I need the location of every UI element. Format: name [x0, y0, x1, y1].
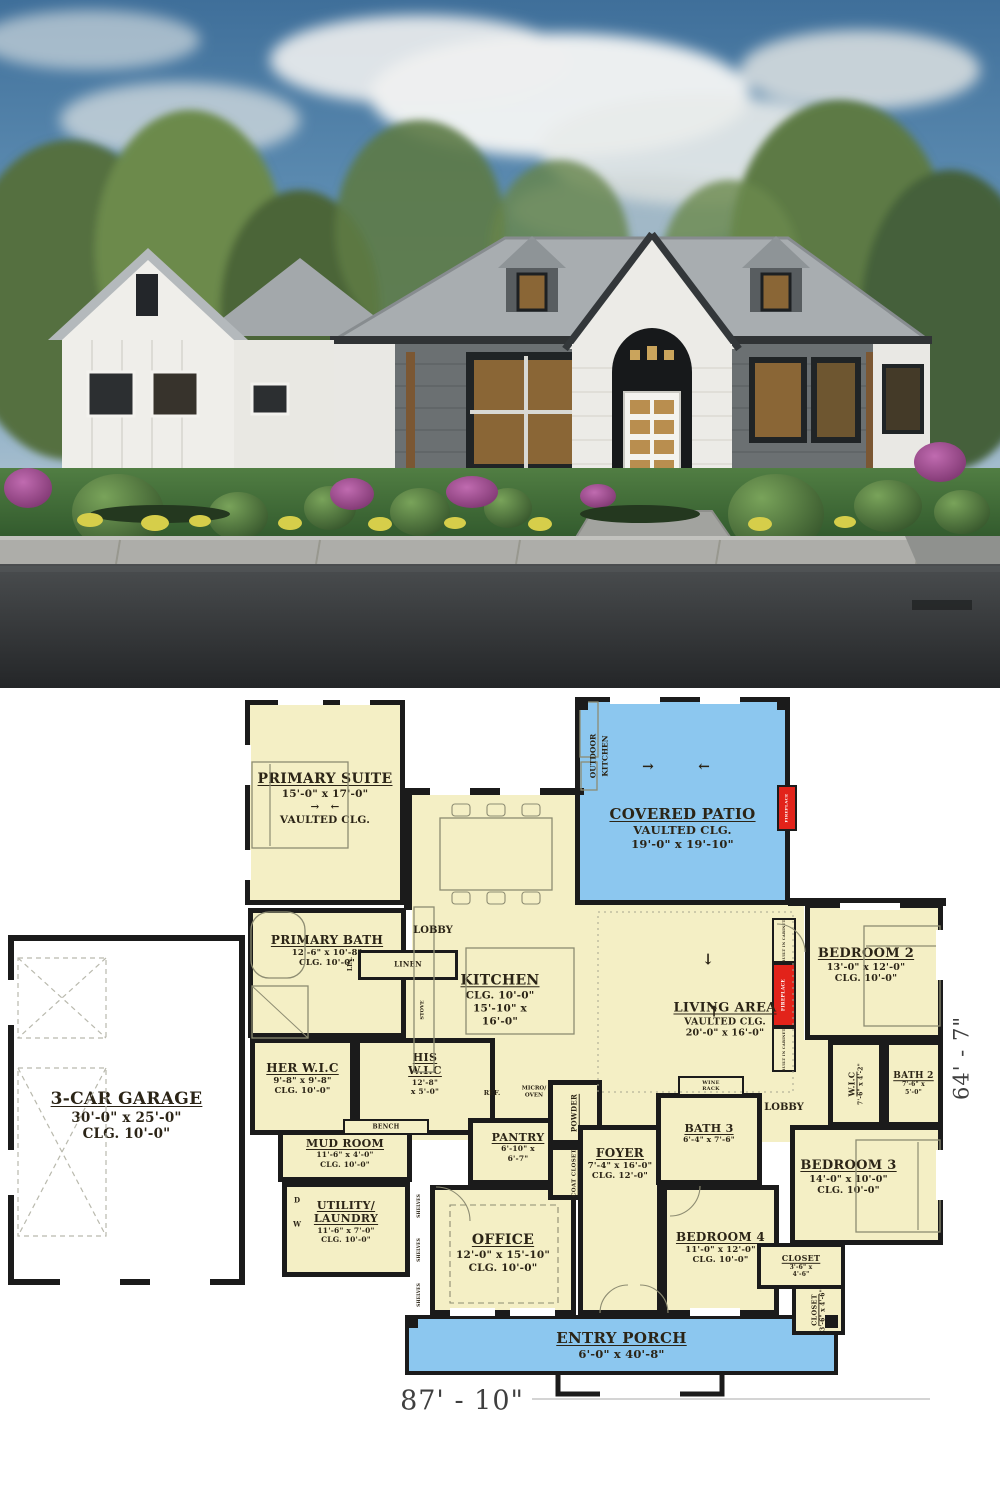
room-label-her-wic: HER W.I.C9'-8" x 9'-8"CLG. 10'-0" [266, 1061, 338, 1096]
room-label-wine-rack: WINERACK [702, 1080, 720, 1092]
room-entry-porch: ENTRY PORCH6'-0" x 40'-8" [405, 1315, 838, 1375]
plan-annotation: OVEN [525, 1093, 543, 1099]
plan-annotation: W [293, 1221, 301, 1228]
room-label-his-wic: HISW.I.C12'-8"x 5'-0" [408, 1051, 442, 1096]
plan-annotation: SHELVES [418, 1283, 423, 1307]
room-label-linen: LINEN [394, 961, 422, 970]
wall-segment [404, 788, 412, 910]
room-utility-laundry: UTILITY/LAUNDRY11'-6" x 7'-0"CLG. 10'-0" [282, 1182, 410, 1277]
room-garage: 3-CAR GARAGE30'-0" x 25'-0"CLG. 10'-0" [8, 935, 245, 1285]
room-label-bedroom-2: BEDROOM 213'-0" x 12'-0"CLG. 10'-0" [818, 946, 914, 985]
room-primary-suite: PRIMARY SUITE15'-0" x 17'-0"→ ←VAULTED C… [245, 700, 405, 905]
floor-plan: COVERED PATIOVAULTED CLG.19'-0" x 19'-10… [0, 688, 1000, 1500]
room-label-fireplace-patio: FIREPLACE [785, 794, 790, 823]
room-label-pantry: PANTRY6'-10" x6'-7" [492, 1131, 545, 1163]
room-label-living-area: LIVING AREAVAULTED CLG.20'-0" x 16'-0" [673, 1000, 776, 1039]
room-label-bench: BENCH [372, 1123, 399, 1130]
exterior-photo [0, 0, 1000, 688]
plan-annotation: MICRO/ [522, 1086, 546, 1092]
room-label-bath-2: BATH 27'-6" x5'-0" [893, 1071, 934, 1097]
room-label-foyer: FOYER7'-4" x 16'-0"CLG. 12'-0" [588, 1146, 652, 1181]
plan-annotation: D [294, 1197, 300, 1204]
room-her-wic: HER W.I.C9'-8" x 9'-8"CLG. 10'-0" [250, 1038, 355, 1135]
plan-annotation: OUTDOOR [589, 734, 597, 778]
room-closet-bedroom4: CLOSET3'-6" x4'-6" [757, 1243, 845, 1289]
plan-annotation: REF. [484, 1090, 501, 1097]
plan-annotation: SHELVES [418, 1194, 423, 1218]
room-label-primary-suite: PRIMARY SUITE15'-0" x 17'-0"→ ←VAULTED C… [258, 771, 393, 826]
room-label-utility-laundry: UTILITY/LAUNDRY11'-6" x 7'-0"CLG. 10'-0" [314, 1199, 378, 1244]
plan-annotation: ← [698, 760, 710, 774]
room-bedroom-3: BEDROOM 314'-0" x 10'-0"CLG. 10'-0" [790, 1125, 943, 1245]
room-closet-bedroom3: CLOSET3'-6" x 4'-6" [792, 1285, 845, 1335]
room-label-closet-bedroom4: CLOSET3'-6" x4'-6" [782, 1254, 821, 1278]
room-label-closet-bedroom3: CLOSET3'-6" x 4'-6" [811, 1289, 826, 1331]
street [0, 536, 1000, 688]
house-plan-pin: COVERED PATIOVAULTED CLG.19'-0" x 19'-10… [0, 0, 1000, 1500]
room-label-wic-2: W.I.C7'-6" x 4'-2" [847, 1063, 864, 1105]
room-label-mud-room: MUD ROOM11'-6" x 4'-0"CLG. 10'-0" [306, 1137, 384, 1169]
room-kitchen: KITCHENCLG. 10'-0"15'-10" x16'-0" [430, 955, 570, 1045]
plan-annotation: LIN. [348, 957, 354, 971]
plan-annotation: KITCHEN [601, 735, 609, 776]
room-living-area: LIVING AREAVAULTED CLG.20'-0" x 16'-0" [610, 985, 840, 1055]
room-label-entry-porch: ENTRY PORCH6'-0" x 40'-8" [556, 1329, 686, 1361]
room-built-in-cabinet-top: BUILT IN CABINET [772, 918, 796, 963]
plan-annotation: STOVE [421, 1000, 426, 1019]
room-label-office: OFFICE12'-0" x 15'-10"CLG. 10'-0" [456, 1232, 550, 1275]
room-dining-floor [408, 790, 580, 905]
room-covered-patio: COVERED PATIOVAULTED CLG.19'-0" x 19'-10… [575, 697, 790, 905]
dimension-label: 87' - 10" [400, 1388, 524, 1415]
room-bath-2: BATH 27'-6" x5'-0" [884, 1040, 943, 1127]
room-wine-rack: WINERACK [678, 1076, 744, 1096]
room-fireplace-patio: FIREPLACE [777, 785, 797, 831]
room-label-bedroom-3: BEDROOM 314'-0" x 10'-0"CLG. 10'-0" [800, 1158, 896, 1197]
room-label-bath-3: BATH 36'-4" x 7'-6" [683, 1122, 735, 1145]
plan-annotation: LOBBY [413, 926, 453, 936]
wall-segment [404, 788, 584, 795]
room-foyer: FOYER7'-4" x 16'-0"CLG. 12'-0" [578, 1125, 662, 1315]
plan-annotation: → [642, 760, 654, 774]
plan-annotation: LOBBY [764, 1103, 804, 1113]
dimension-label: 64' - 7" [952, 1016, 973, 1100]
room-mud-room: MUD ROOM11'-6" x 4'-0"CLG. 10'-0" [278, 1130, 412, 1182]
room-bath-3: BATH 36'-4" x 7'-6" [656, 1093, 762, 1185]
room-label-covered-patio: COVERED PATIOVAULTED CLG.19'-0" x 19'-10… [609, 805, 755, 851]
plan-annotation: ↓ [702, 953, 715, 968]
room-label-bedroom-4: BEDROOM 411'-0" x 12'-0"CLG. 10'-0" [676, 1230, 765, 1265]
room-label-built-in-cabinet-top: BUILT IN CABINET [782, 919, 786, 962]
room-label-kitchen: KITCHENCLG. 10'-0"15'-10" x16'-0" [460, 972, 539, 1027]
room-label-garage: 3-CAR GARAGE30'-0" x 25'-0"CLG. 10'-0" [51, 1089, 203, 1143]
plan-annotation: ↑ [708, 1005, 721, 1020]
room-bench: BENCH [343, 1119, 429, 1135]
plan-annotation: SHELVES [418, 1238, 423, 1262]
room-office: OFFICE12'-0" x 15'-10"CLG. 10'-0" [430, 1185, 576, 1315]
wall-segment [788, 898, 946, 906]
